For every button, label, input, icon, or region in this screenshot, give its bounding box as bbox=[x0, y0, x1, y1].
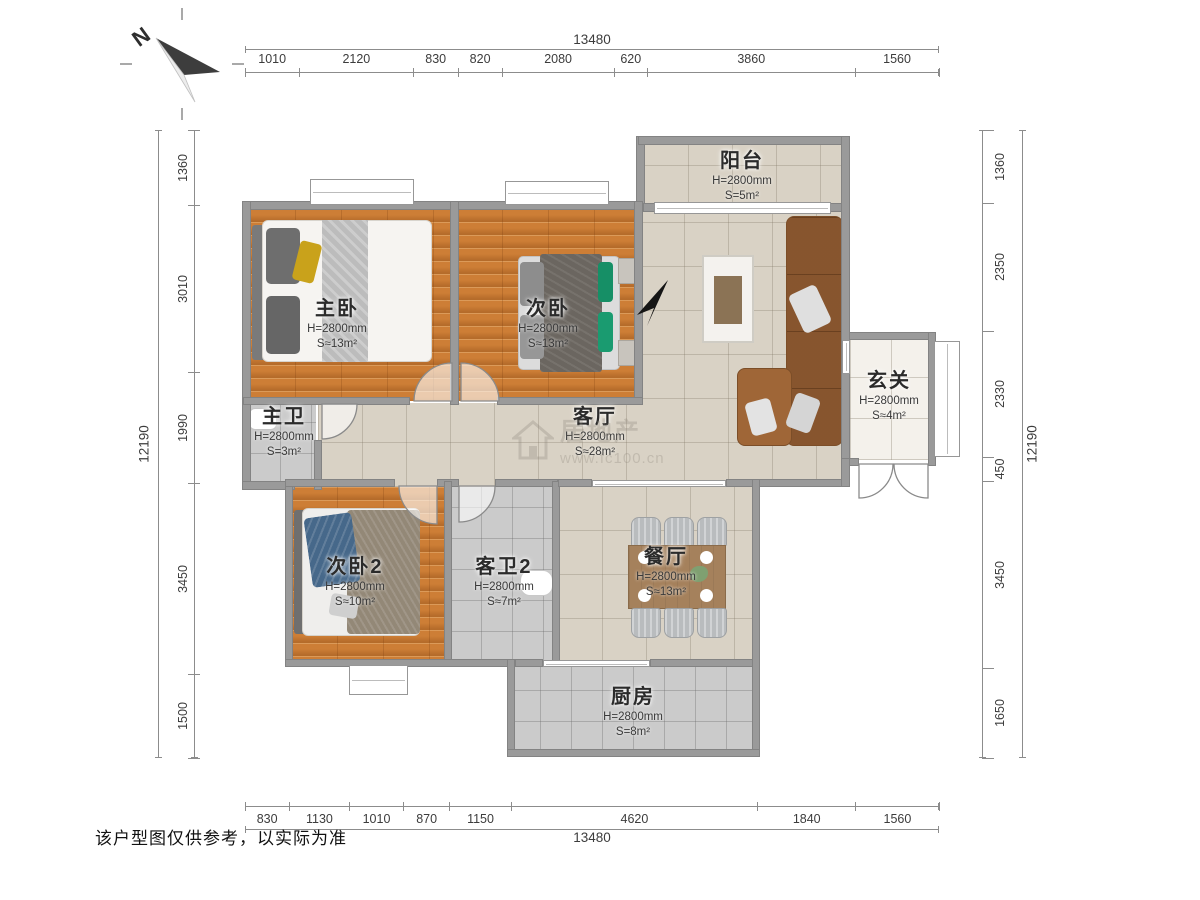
dim-segment: 1560 bbox=[855, 51, 939, 68]
room-label-master: 主卧 H=2800mm S≈13m² bbox=[307, 298, 367, 351]
dim-segment: 3450 bbox=[988, 482, 1012, 669]
dim-segment: 2080 bbox=[502, 51, 614, 68]
door-master bbox=[414, 363, 452, 401]
dim-segment: 1650 bbox=[988, 669, 1012, 758]
dim-segment: 1990 bbox=[172, 373, 194, 484]
dim-segment: 1360 bbox=[988, 130, 1012, 204]
dim-segment: 2330 bbox=[988, 331, 1012, 457]
door-bed2 bbox=[461, 363, 499, 401]
dim-line bbox=[1022, 130, 1023, 758]
ruler-left: 12190 1360 3010 1990 3450 1500 bbox=[146, 130, 200, 758]
dim-line bbox=[245, 49, 939, 50]
svg-text:N: N bbox=[127, 22, 155, 52]
ruler-bottom: 830 1130 1010 870 1150 4620 1840 1560 13… bbox=[245, 806, 939, 847]
dim-segment: 620 bbox=[614, 51, 647, 68]
ruler-top: 13480 1010 2120 830 820 2080 620 3860 15… bbox=[245, 32, 939, 73]
dim-line bbox=[982, 130, 983, 758]
room-label-entrance: 玄关 H=2800mm S≈4m² bbox=[859, 370, 919, 423]
dim-total-bottom: 13480 bbox=[245, 830, 939, 847]
room-label-bed2: 次卧 H=2800mm S≈13m² bbox=[518, 298, 578, 351]
dim-line bbox=[194, 130, 195, 758]
dim-segment: 450 bbox=[988, 457, 1012, 481]
door-guest-bath bbox=[459, 486, 495, 522]
dim-segment: 1500 bbox=[172, 675, 194, 758]
dim-segment: 3860 bbox=[647, 51, 855, 68]
dim-total-top: 13480 bbox=[245, 32, 939, 49]
dim-segment: 2350 bbox=[988, 204, 1012, 331]
entry-door-left bbox=[859, 464, 893, 498]
room-label-bed3: 次卧2 H=2800mm S≈10m² bbox=[325, 556, 385, 609]
dim-segment: 4620 bbox=[511, 811, 757, 828]
door-master-bath bbox=[322, 404, 357, 439]
room-label-balcony: 阳台 H=2800mm S=5m² bbox=[712, 150, 772, 203]
disclaimer-text: 该户型图仅供参考，以实际为准 bbox=[95, 824, 347, 849]
dim-total-right: 12190 bbox=[1025, 425, 1040, 463]
room-label-master-bath: 主卫 H=2800mm S=3m² bbox=[254, 406, 314, 459]
door-bed3 bbox=[399, 486, 437, 524]
dim-segment: 2120 bbox=[299, 51, 413, 68]
dim-segment: 1150 bbox=[450, 811, 511, 828]
ruler-right: 12190 1360 2350 2330 450 3450 1650 bbox=[980, 130, 1038, 758]
room-label-kitchen: 厨房 H=2800mm S=8m² bbox=[603, 686, 663, 739]
dim-segment: 870 bbox=[403, 811, 449, 828]
compass-icon: N bbox=[120, 8, 244, 120]
dim-line bbox=[158, 130, 159, 758]
dim-segment: 1560 bbox=[856, 811, 939, 828]
dim-line bbox=[245, 829, 939, 830]
room-label-guest-bath: 客卫2 H=2800mm S≈7m² bbox=[474, 556, 534, 609]
entry-direction-arrow-icon bbox=[634, 278, 670, 333]
dim-line bbox=[245, 72, 939, 73]
dim-segment: 3010 bbox=[172, 206, 194, 373]
floor-plan-page: 13480 1010 2120 830 820 2080 620 3860 15… bbox=[0, 0, 1200, 900]
dim-segment: 820 bbox=[458, 51, 502, 68]
dim-segment: 1010 bbox=[350, 811, 404, 828]
dim-total-left: 12190 bbox=[137, 425, 152, 463]
dim-segment: 1360 bbox=[172, 130, 194, 206]
dim-segment: 830 bbox=[413, 51, 458, 68]
room-label-living: 客厅 H=2800mm S≈28m² bbox=[565, 406, 625, 459]
room-label-dining: 餐厅 H=2800mm S≈13m² bbox=[636, 546, 696, 599]
north-compass: N bbox=[120, 8, 244, 125]
dim-segment: 3450 bbox=[172, 483, 194, 675]
dim-segment: 1840 bbox=[758, 811, 856, 828]
entry-door-right bbox=[894, 464, 928, 498]
dim-segment: 1010 bbox=[245, 51, 299, 68]
